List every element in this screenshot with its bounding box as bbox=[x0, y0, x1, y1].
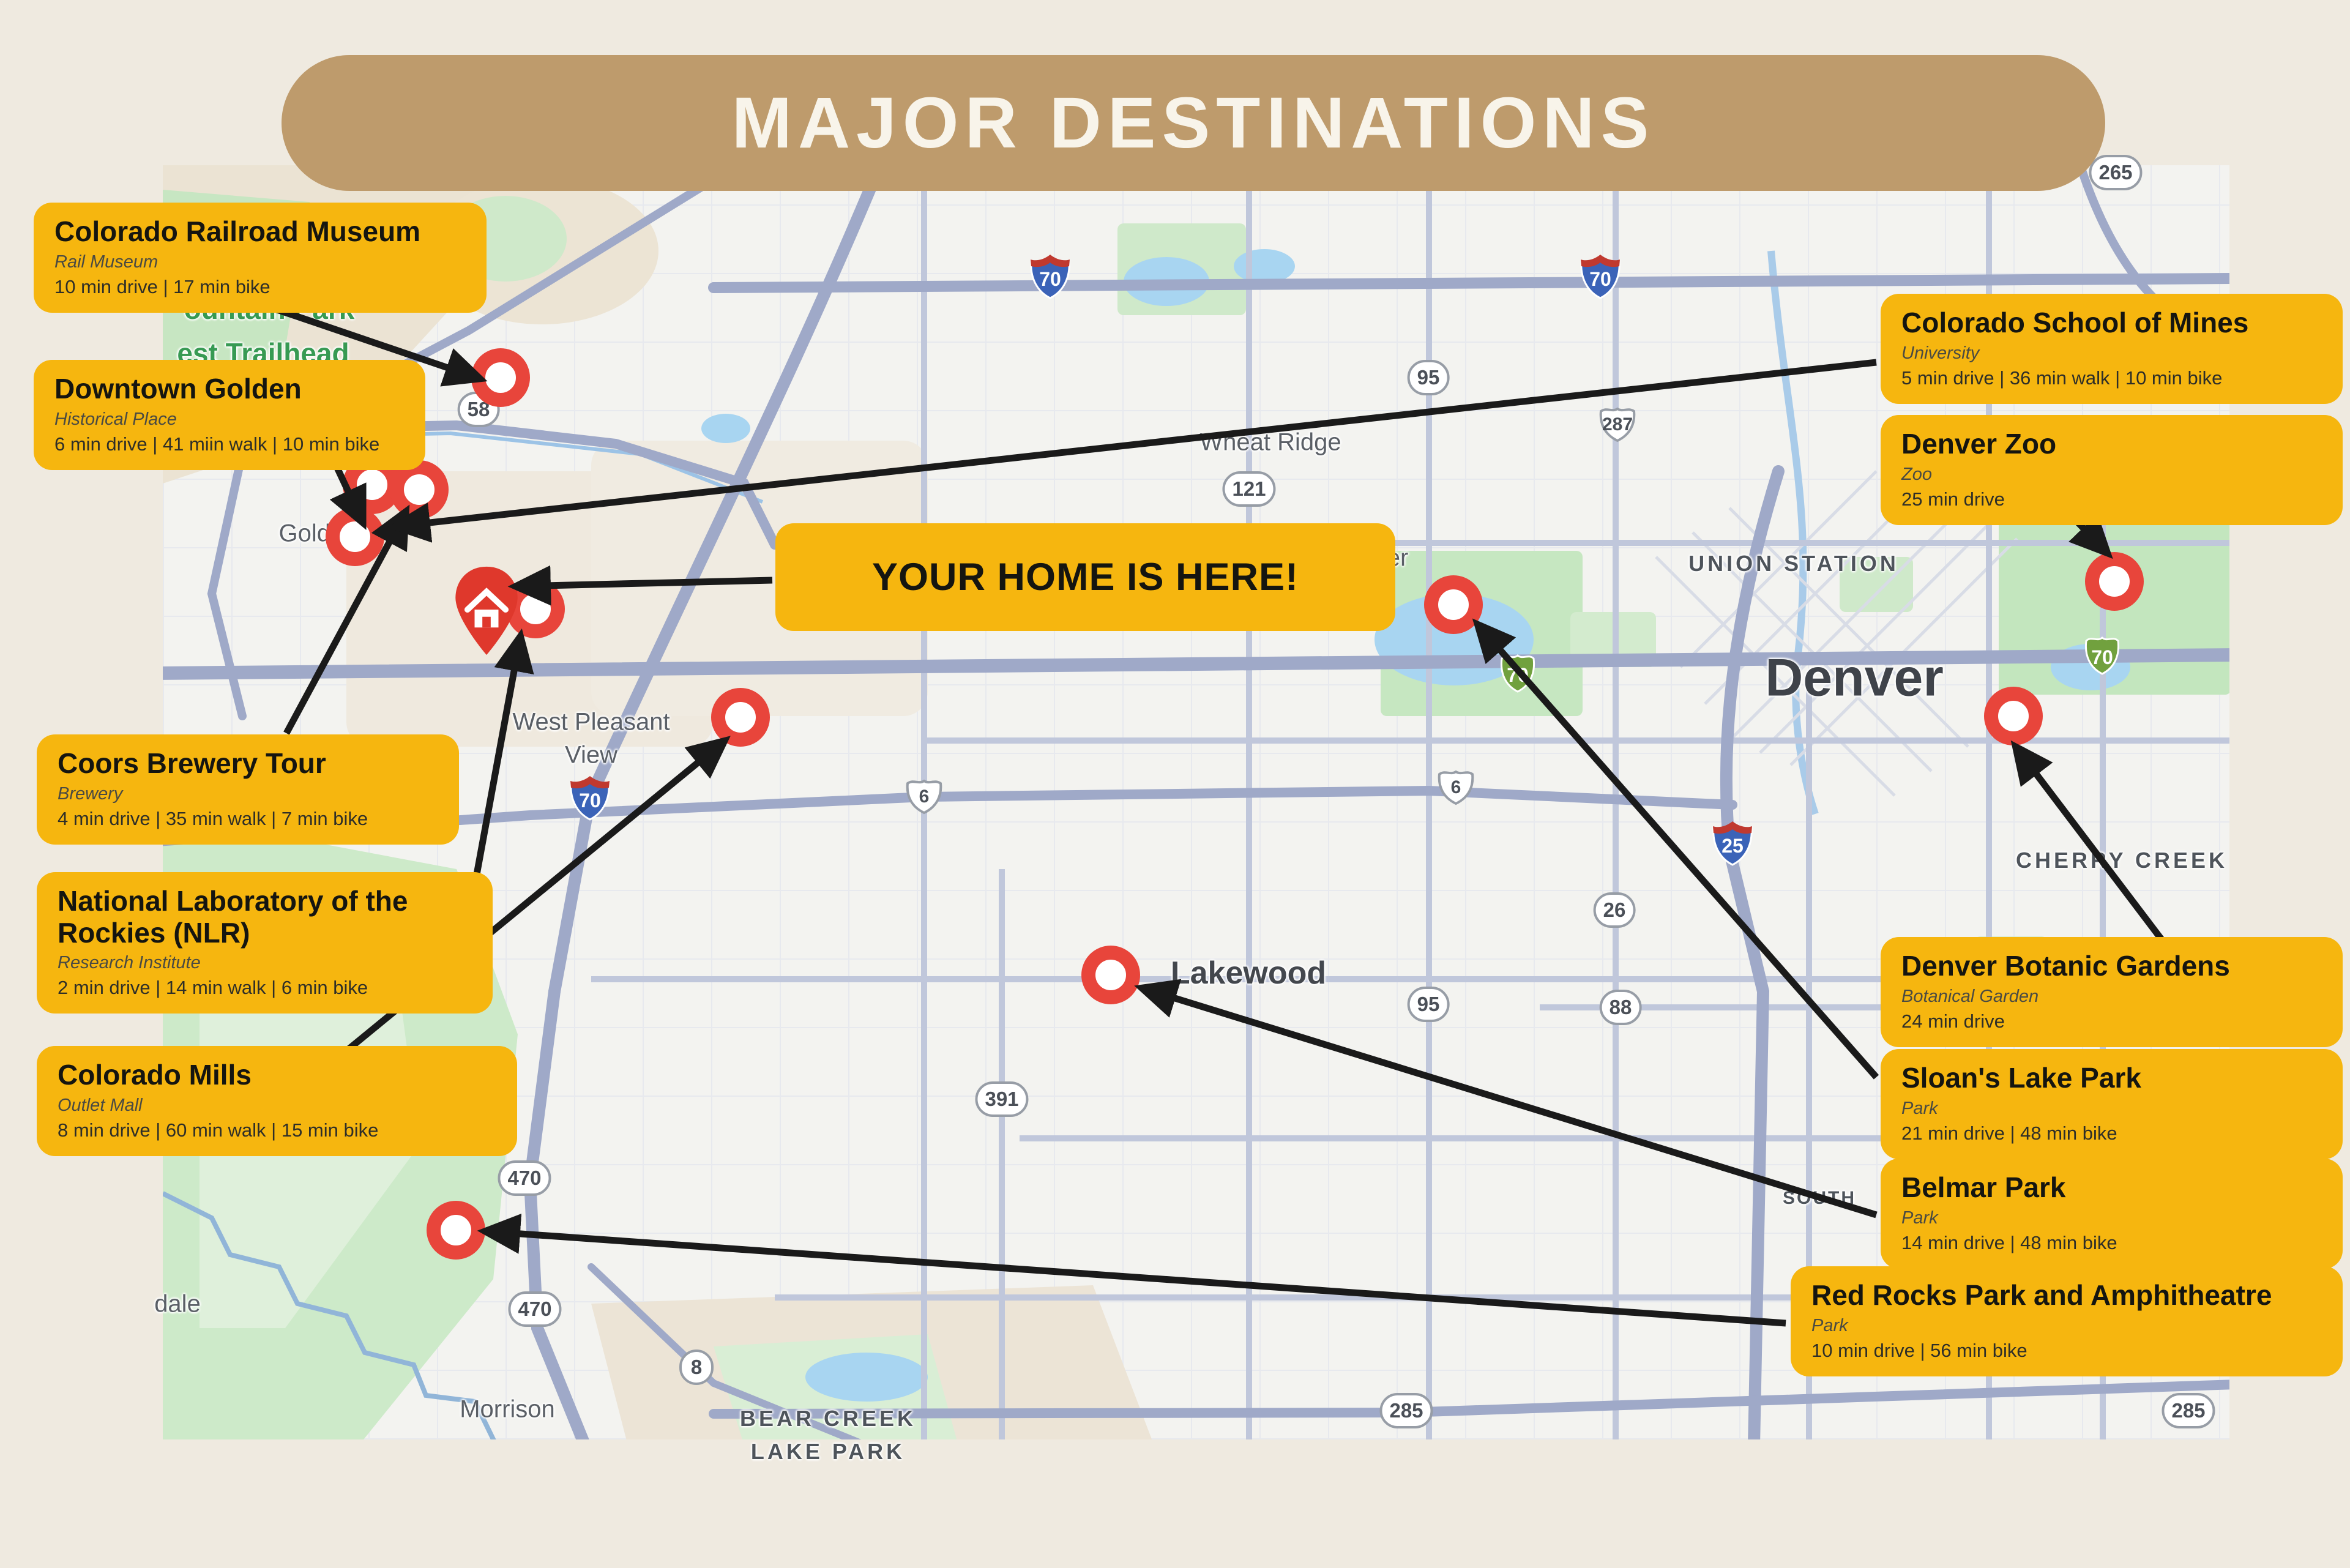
road-shield-us-287: 287 bbox=[1596, 404, 1639, 444]
destination-info: 2 min drive | 14 min walk | 6 min bike bbox=[58, 977, 472, 999]
destination-subtitle: Rail Museum bbox=[54, 252, 466, 272]
road-shield-oval-88: 88 bbox=[1600, 990, 1642, 1025]
destination-label-sloans-lake-park: Sloan's Lake ParkPark21 min drive | 48 m… bbox=[1881, 1049, 2343, 1159]
destination-subtitle: University bbox=[1901, 343, 2322, 364]
road-shield-oval-470: 470 bbox=[498, 1160, 551, 1196]
destination-info: 8 min drive | 60 min walk | 15 min bike bbox=[58, 1119, 496, 1141]
destination-label-red-rocks-park-and-amphitheatre: Red Rocks Park and AmphitheatrePark10 mi… bbox=[1791, 1266, 2343, 1376]
road-shield-oval-26: 26 bbox=[1594, 892, 1636, 928]
map-label: SOUTH bbox=[1783, 1188, 1856, 1209]
map-marker-red-rocks-park-and-amphitheatre bbox=[427, 1201, 485, 1260]
svg-text:70: 70 bbox=[1039, 268, 1061, 290]
map-marker-belmar-park bbox=[1081, 946, 1140, 1004]
road-shield-oval-95: 95 bbox=[1408, 987, 1450, 1022]
road-shield-state-green-70: 70 bbox=[2080, 632, 2124, 679]
destination-title: Denver Botanic Gardens bbox=[1901, 950, 2322, 982]
destination-info: 25 min drive bbox=[1901, 488, 2322, 510]
destination-subtitle: Botanical Garden bbox=[1901, 987, 2322, 1007]
destination-title: Colorado School of Mines bbox=[1901, 307, 2322, 339]
road-shield-interstate-70: 70 bbox=[1578, 252, 1623, 301]
destination-info: 21 min drive | 48 min bike bbox=[1901, 1122, 2322, 1144]
svg-text:6: 6 bbox=[1451, 777, 1461, 797]
map-label: LAKE PARK bbox=[751, 1439, 905, 1465]
map-label: Wheat Ridge bbox=[1199, 429, 1341, 457]
svg-text:70: 70 bbox=[1507, 664, 1529, 686]
road-shield-oval-285: 285 bbox=[2162, 1393, 2215, 1428]
svg-text:287: 287 bbox=[1602, 414, 1633, 435]
road-shield-interstate-70: 70 bbox=[567, 773, 613, 822]
banner-title: MAJOR DESTINATIONS bbox=[732, 81, 1655, 165]
map-label: View bbox=[565, 742, 617, 769]
map-marker-sloans-lake-park bbox=[1424, 575, 1483, 634]
destination-title: Downtown Golden bbox=[54, 373, 405, 405]
destination-label-colorado-mills: Colorado MillsOutlet Mall8 min drive | 6… bbox=[37, 1046, 517, 1156]
map-label: West Pleasant bbox=[512, 709, 670, 736]
destination-label-national-laboratory-of-the-rockies: National Laboratory of the Rockies (NLR)… bbox=[37, 872, 493, 1014]
destination-title: Colorado Mills bbox=[58, 1059, 496, 1091]
map-marker-denver-zoo bbox=[2085, 552, 2144, 611]
map-marker-colorado-railroad-museum bbox=[471, 348, 530, 407]
road-shield-us-6: 6 bbox=[903, 776, 946, 816]
destination-label-denver-zoo: Denver ZooZoo25 min drive bbox=[1881, 415, 2343, 525]
destination-label-denver-botanic-gardens: Denver Botanic GardensBotanical Garden24… bbox=[1881, 937, 2343, 1047]
destination-subtitle: Outlet Mall bbox=[58, 1096, 496, 1116]
destination-info: 5 min drive | 36 min walk | 10 min bike bbox=[1901, 367, 2322, 389]
destination-subtitle: Brewery bbox=[58, 784, 438, 804]
svg-text:25: 25 bbox=[1721, 835, 1744, 857]
map-label: dale bbox=[154, 1291, 201, 1318]
destination-label-downtown-golden: Downtown GoldenHistorical Place6 min dri… bbox=[34, 360, 425, 470]
road-shield-oval-391: 391 bbox=[975, 1081, 1028, 1117]
destination-title: Belmar Park bbox=[1901, 1172, 2322, 1204]
road-shield-oval-121: 121 bbox=[1222, 471, 1275, 507]
destination-title: Colorado Railroad Museum bbox=[54, 216, 466, 248]
destination-label-colorado-railroad-museum: Colorado Railroad MuseumRail Museum10 mi… bbox=[34, 203, 487, 313]
banner: MAJOR DESTINATIONS bbox=[282, 55, 2105, 191]
map-label: Morrison bbox=[460, 1396, 555, 1424]
home-label-text: YOUR HOME IS HERE! bbox=[872, 555, 1299, 599]
svg-text:6: 6 bbox=[919, 786, 930, 807]
destination-label-belmar-park: Belmar ParkPark14 min drive | 48 min bik… bbox=[1881, 1159, 2343, 1269]
destination-info: 10 min drive | 17 min bike bbox=[54, 276, 466, 298]
road-shield-state-green-70: 70 bbox=[1496, 650, 1540, 696]
destination-subtitle: Park bbox=[1901, 1099, 2322, 1119]
destination-label-coors-brewery-tour: Coors Brewery TourBrewery4 min drive | 3… bbox=[37, 734, 459, 845]
destination-title: National Laboratory of the Rockies (NLR) bbox=[58, 886, 472, 949]
destination-subtitle: Historical Place bbox=[54, 409, 405, 430]
svg-text:70: 70 bbox=[1589, 268, 1611, 290]
map-marker-colorado-mills bbox=[711, 688, 770, 747]
road-shield-interstate-70: 70 bbox=[1028, 252, 1073, 301]
map-marker-denver-botanic-gardens bbox=[1984, 687, 2043, 745]
infographic-canvas: Colorado Railroad MuseumRail Museum10 mi… bbox=[0, 0, 2350, 1568]
destination-info: 24 min drive bbox=[1901, 1010, 2322, 1032]
map-label: UNION STATION bbox=[1688, 551, 1899, 577]
destination-subtitle: Research Institute bbox=[58, 953, 472, 973]
destination-info: 4 min drive | 35 min walk | 7 min bike bbox=[58, 808, 438, 830]
destination-title: Red Rocks Park and Amphitheatre bbox=[1811, 1280, 2322, 1312]
road-shield-us-6: 6 bbox=[1434, 767, 1477, 807]
map-label: Denver bbox=[1765, 648, 1944, 709]
home-pin-icon bbox=[450, 564, 523, 657]
road-shield-interstate-25: 25 bbox=[1710, 818, 1755, 867]
svg-text:70: 70 bbox=[2091, 646, 2113, 668]
map-label: CHERRY CREEK bbox=[2016, 848, 2228, 873]
road-shield-oval-8: 8 bbox=[679, 1350, 714, 1385]
destination-label-colorado-school-of-mines: Colorado School of MinesUniversity5 min … bbox=[1881, 294, 2343, 404]
destination-subtitle: Zoo bbox=[1901, 465, 2322, 485]
destination-title: Coors Brewery Tour bbox=[58, 748, 438, 780]
destination-info: 10 min drive | 56 min bike bbox=[1811, 1340, 2322, 1362]
destination-subtitle: Park bbox=[1901, 1208, 2322, 1228]
road-shield-oval-470: 470 bbox=[508, 1291, 561, 1327]
road-shield-oval-95: 95 bbox=[1408, 360, 1450, 395]
home-label: YOUR HOME IS HERE! bbox=[775, 523, 1395, 631]
map-label: Lakewood bbox=[1171, 955, 1326, 991]
destination-info: 6 min drive | 41 miin walk | 10 min bike bbox=[54, 433, 405, 455]
destination-title: Denver Zoo bbox=[1901, 428, 2322, 460]
destination-info: 14 min drive | 48 min bike bbox=[1901, 1232, 2322, 1254]
map-label: BEAR CREEK bbox=[740, 1406, 916, 1432]
map-marker-downtown-golden bbox=[326, 507, 384, 566]
svg-text:70: 70 bbox=[579, 790, 601, 812]
road-shield-oval-285: 285 bbox=[1379, 1393, 1433, 1428]
destination-subtitle: Park bbox=[1811, 1316, 2322, 1336]
road-shield-oval-265: 265 bbox=[2089, 155, 2142, 190]
destination-title: Sloan's Lake Park bbox=[1901, 1062, 2322, 1094]
